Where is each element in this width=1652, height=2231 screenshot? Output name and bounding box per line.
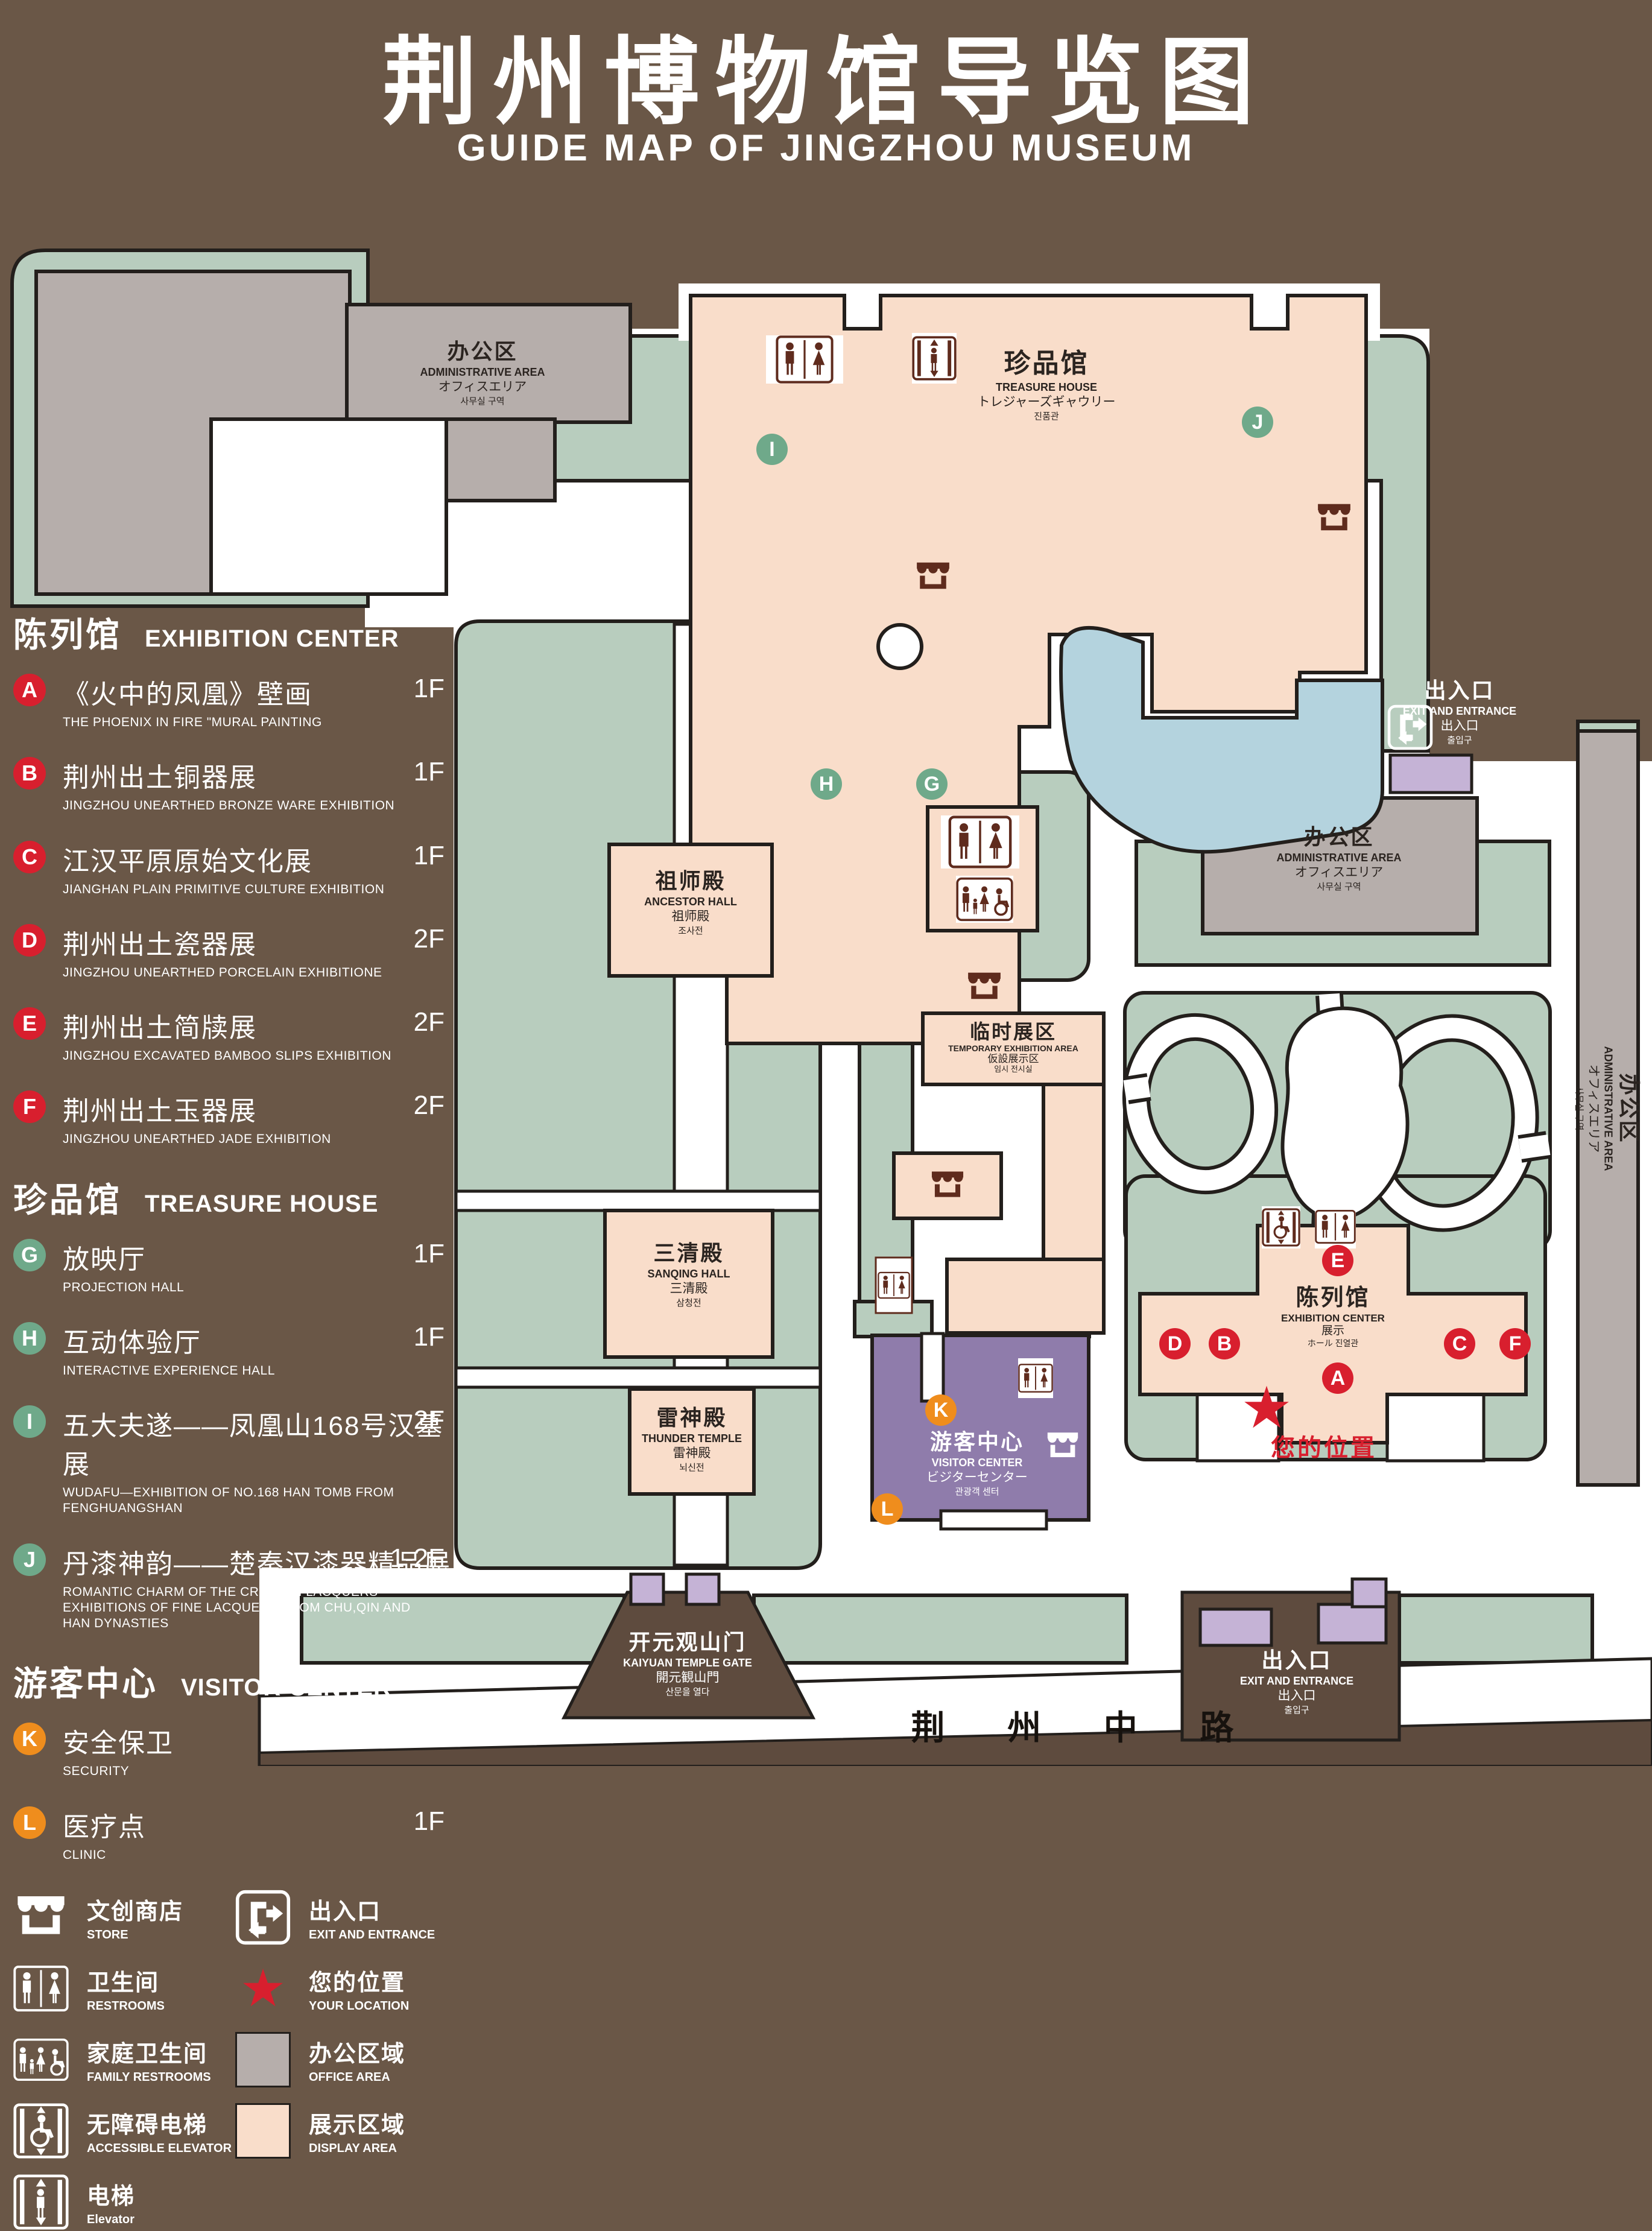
label-kr: 조사전 [644,925,737,937]
exit-icon [235,1890,291,1945]
marker-badge-b: B [13,757,46,790]
item-en: ROMANTIC CHARM OF THE CRIMSON LACQUERS—E… [63,1584,425,1632]
location-star-icon: ★ [235,1963,291,2014]
symbol-zh: 文创商店 [87,1893,183,1926]
label-zh: 出入口 [1403,677,1516,704]
legend-item-h: H 互动体验厅 1F INTERACTIVE EXPERIENCE HALL [13,1321,463,1379]
label-admin-topleft: 办公区 ADMINISTRATIVE AREA オフィスエリア 사무실 구역 [420,338,545,407]
label-jp: 仮設展示区 [948,1053,1078,1065]
item-en: SECURITY [63,1764,425,1779]
temporary-bottom [947,1259,1104,1333]
map-marker-j: J [1242,407,1273,438]
item-en: JINGZHOU UNEARTHED BRONZE WARE EXHIBITIO… [63,798,425,814]
symbol-en: FAMILY RESTROOMS [87,2071,211,2084]
label-kr: ホール 진열관 [1281,1338,1385,1349]
label-zh: 办公区 [1277,823,1402,851]
item-zh: 安全保卫 [63,1729,174,1758]
label-en: EXIT AND ENTRANCE [1403,704,1516,718]
label-en: ANCESTOR HALL [644,895,737,909]
label-jp: オフィスエリア [1585,1046,1601,1171]
east-entrance-block [1390,755,1472,793]
label-en: KAIYUAN TEMPLE GATE [623,1656,752,1670]
item-floor: 1F [414,1806,445,1837]
legend-item-k: K 安全保卫 1F SECURITY [13,1721,463,1779]
marker-badge-h: H [13,1322,46,1355]
label-en: THUNDER TEMPLE [642,1432,742,1446]
item-en: PROJECTION HALL [63,1280,425,1296]
label-exhibition-center: 陈列馆 EXHIBITION CENTER 展示 ホール 진열관 [1281,1285,1385,1349]
legend-item-d: D 荆州出土瓷器展 2F JINGZHOU UNEARTHED PORCELAI… [13,923,463,981]
item-floor: 1F [414,1322,445,1352]
green-bottom-2 [754,1595,1127,1663]
legend-section-exhibition: 陈列馆EXHIBITION CENTER [13,608,463,657]
item-floor: 2F [414,1405,445,1435]
map-marker-k: K [925,1394,957,1426]
label-jp: トレジャーズギャウリー [978,394,1116,411]
label-kr: 뇌신전 [642,1462,742,1473]
map-marker-i: I [756,434,788,465]
legend-item-l: L 医疗点 1F CLINIC [13,1805,463,1863]
legend-family-restrooms: 家庭卫生间FAMILY RESTROOMS [13,2031,235,2089]
label-jp: 三清殿 [648,1281,730,1297]
label-zh: 开元观山门 [623,1628,752,1656]
green-bottom-3 [1399,1595,1592,1663]
symbol-zh: 家庭卫生间 [87,2035,211,2068]
item-en: JINGZHOU EXCAVATED BAMBOO SLIPS EXHIBITI… [63,1048,425,1064]
legend-symbol-grid: 文创商店STORE 出入口EXIT AND ENTRANCE 卫生间RESTRO… [13,1888,463,2231]
legend-office-area: 办公区域OFFICE AREA [235,2031,460,2089]
label-en: EXHIBITION CENTER [1281,1312,1385,1324]
restroom-icon [13,1961,69,2016]
temporary-leg [1043,1084,1104,1259]
symbol-zh: 展示区域 [309,2106,405,2139]
label-zh: 三清殿 [648,1239,730,1267]
label-temporary-area: 临时展区 TEMPORARY EXHIBITION AREA 仮設展示区 임시 … [948,1021,1078,1074]
label-zh: 陈列馆 [1281,1285,1385,1312]
item-zh: 医疗点 [63,1812,146,1842]
marker-badge-j: J [13,1543,46,1576]
item-zh: 荆州出土瓷器展 [63,930,257,960]
item-floor: 1F [414,841,445,871]
item-floor: 1F [414,674,445,704]
label-kr: 진품관 [978,411,1116,422]
section-title-en: TREASURE HOUSE [145,1191,378,1217]
label-en: TEMPORARY EXHIBITION AREA [948,1043,1078,1053]
legend-section-treasure: 珍品馆TREASURE HOUSE [13,1173,463,1222]
th-elevator-icon [912,333,957,384]
label-treasure-house: 珍品馆 TREASURE HOUSE トレジャーズギャウリー 진품관 [978,347,1116,422]
label-kr: 사무실 구역 [420,396,545,407]
label-en: ADMINISTRATIVE AREA [420,366,545,379]
label-sanqing-hall: 三清殿 SANQING HALL 三清殿 삼청전 [648,1239,730,1309]
label-jp: 祖师殿 [644,909,737,925]
symbol-en: OFFICE AREA [309,2071,405,2084]
elevator-icon [13,2174,69,2230]
map-marker-l: L [872,1493,903,1525]
map-marker-f: F [1499,1328,1531,1359]
store-icon [13,1890,69,1945]
legend-panel: 陈列馆EXHIBITION CENTER A 《火中的凤凰》壁画 1F THE … [13,608,463,2231]
label-zh: 出入口 [1240,1647,1353,1674]
garden-pond [1282,1008,1407,1219]
section-title-zh: 游客中心 [13,1665,158,1703]
section-title-en: EXHIBITION CENTER [145,625,399,652]
item-zh: 互动体验厅 [63,1328,201,1358]
your-location-label: 您的位置 [1271,1428,1377,1463]
label-en: ADMINISTRATIVE AREA [1601,1046,1615,1171]
label-kaiyuan-gate: 开元观山门 KAIYUAN TEMPLE GATE 開元観山門 산문을 열다 [623,1628,752,1698]
label-en: SANQING HALL [648,1267,730,1281]
label-kr: 사무실 구역 [1277,881,1402,893]
label-zh: 办公区 [420,338,545,366]
label-thunder-temple: 雷神殿 THUNDER TEMPLE 雷神殿 뇌신전 [642,1404,742,1473]
item-zh: 荆州出土简牍展 [63,1013,257,1043]
label-jp: オフィスエリア [420,379,545,396]
legend-elevator: 电梯Elevator [13,2173,235,2231]
symbol-zh: 您的位置 [309,1964,409,1997]
legend-accessible-elevator: 无障碍电梯ACCESSIBLE ELEVATOR [13,2102,235,2160]
item-zh: 荆州出土铜器展 [63,763,257,793]
item-floor: 2F [414,1007,445,1037]
office-courtyard [211,419,446,594]
office-top-left-col [446,419,555,501]
marker-badge-i: I [13,1405,46,1438]
legend-store: 文创商店STORE [13,1888,235,1946]
label-zh: 办公区 [1615,1046,1643,1171]
item-zh: 江汉平原原始文化展 [63,847,312,876]
legend-item-a: A 《火中的凤凰》壁画 1F THE PHOENIX IN FIRE "MURA… [13,672,463,730]
court-restroom-icon [941,815,1019,869]
legend-item-b: B 荆州出土铜器展 1F JINGZHOU UNEARTHED BRONZE W… [13,756,463,814]
temporary-store [894,1153,1001,1218]
map-marker-c: C [1444,1328,1475,1359]
label-admin-right: 办公区 ADMINISTRATIVE AREA オフィスエリア 사무실 구역 [1573,1046,1642,1171]
label-en: EXIT AND ENTRANCE [1240,1674,1353,1688]
marker-badge-e: E [13,1007,46,1040]
item-zh: 五大夫遂——凤凰山168号汉墓展 [63,1411,443,1479]
symbol-en: EXIT AND ENTRANCE [309,1928,435,1942]
label-road: 荆 州 中 路 [911,1701,1261,1750]
symbol-zh: 无障碍电梯 [87,2106,232,2139]
temporary-restroom-icon [876,1258,912,1313]
label-jp: 開元観山門 [623,1670,752,1686]
legend-item-f: F 荆州出土玉器展 2F JINGZHOU UNEARTHED JADE EXH… [13,1089,463,1147]
label-zh: 祖师殿 [644,867,737,895]
label-kr: 사무실 구역 [1573,1046,1584,1171]
item-en: CLINIC [63,1847,425,1863]
label-zh: 临时展区 [948,1021,1078,1043]
map-marker-d: D [1159,1328,1191,1359]
marker-badge-c: C [13,841,46,873]
item-en: JINGZHOU UNEARTHED PORCELAIN EXHIBITIONE [63,965,425,981]
map-marker-b: B [1209,1328,1240,1359]
label-en: VISITOR CENTER [926,1456,1028,1470]
item-floor: 1F [414,1239,445,1269]
accessible-elevator-icon [13,2103,69,2159]
label-zh: 雷神殿 [642,1404,742,1432]
item-en: JINGZHOU UNEARTHED JADE EXHIBITION [63,1131,425,1147]
label-jp: 雷神殿 [642,1446,742,1462]
court-family-restroom-icon [956,876,1013,923]
family-restroom-icon [13,2032,69,2087]
item-floor: 2F [414,924,445,954]
label-zh: 游客中心 [926,1428,1028,1456]
map-marker-a: A [1322,1362,1353,1394]
vc-restroom-icon [1018,1358,1053,1398]
marker-badge-g: G [13,1239,46,1271]
marker-badge-f: F [13,1090,46,1123]
label-kr: 임시 전시실 [948,1065,1078,1074]
guide-map-page: { "title": {"zh": "荆州博物馆导览图", "en": "GUI… [0,0,1652,1766]
page-subtitle: GUIDE MAP OF JINGZHOU MUSEUM [0,127,1652,169]
label-jp: ビジターセンター [926,1470,1028,1486]
office-area-swatch [235,2032,291,2087]
label-east-exit: 出入口 EXIT AND ENTRANCE 出入口 출입구 [1403,677,1516,746]
label-en: TREASURE HOUSE [978,381,1116,394]
item-floor: 2F [414,1090,445,1121]
symbol-en: STORE [87,1928,183,1942]
legend-item-c: C 江汉平原原始文化展 1F JIANGHAN PLAIN PRIMITIVE … [13,840,463,897]
legend-item-j: J 丹漆神韵——楚秦汉漆器精品展 1-2F ROMANTIC CHARM OF … [13,1542,463,1632]
page-title: 荆州博物馆导览图 [0,5,1652,143]
label-kr: 관광객 센터 [926,1486,1028,1498]
legend-restrooms: 卫生间RESTROOMS [13,1960,235,2017]
th-restroom-icon [766,335,843,384]
legend-your-location: ★ 您的位置YOUR LOCATION [235,1960,460,2017]
label-kr: 삼청전 [648,1297,730,1309]
marker-badge-a: A [13,674,46,706]
item-zh: 放映厅 [63,1245,146,1274]
label-en: ADMINISTRATIVE AREA [1277,851,1402,865]
label-jp: 出入口 [1403,718,1516,735]
item-floor: 1-2F [390,1543,445,1574]
legend-display-area: 展示区域DISPLAY AREA [235,2102,460,2160]
item-en: WUDAFU—EXHIBITION OF NO.168 HAN TOMB FRO… [63,1485,425,1517]
section-title-zh: 珍品馆 [13,1181,122,1219]
item-zh: 荆州出土玉器展 [63,1097,257,1126]
label-ancestor-hall: 祖师殿 ANCESTOR HALL 祖师殿 조사전 [644,867,737,937]
symbol-en: YOUR LOCATION [309,1999,409,2013]
symbol-zh: 出入口 [309,1893,435,1926]
label-kr: 출입구 [1403,735,1516,746]
label-jp: オフィスエリア [1277,865,1402,881]
legend-exit: 出入口EXIT AND ENTRANCE [235,1888,460,1946]
symbol-en: Elevator [87,2213,135,2227]
map-marker-e: E [1322,1245,1353,1276]
label-zh: 珍品馆 [978,347,1116,381]
marker-badge-d: D [13,924,46,957]
legend-item-g: G 放映厅 1F PROJECTION HALL [13,1238,463,1296]
marker-badge-k: K [13,1723,46,1755]
legend-section-visitor: 游客中心VISITOR CENTER [13,1657,463,1706]
symbol-zh: 卫生间 [87,1964,165,1997]
map-marker-h: H [811,768,842,800]
legend-item-i: I 五大夫遂——凤凰山168号汉墓展 2F WUDAFU—EXHIBITION … [13,1404,463,1517]
marker-badge-l: L [13,1806,46,1839]
symbol-en: ACCESSIBLE ELEVATOR [87,2142,232,2156]
plaza-restroom-icon [1315,1205,1356,1248]
label-kr: 산문을 열다 [623,1686,752,1698]
item-zh: 《火中的凤凰》壁画 [63,680,312,709]
symbol-en: RESTROOMS [87,1999,165,2013]
symbol-en: DISPLAY AREA [309,2142,405,2156]
item-floor: 1F [414,757,445,787]
symbol-zh: 电梯 [87,2177,135,2210]
item-en: THE PHOENIX IN FIRE "MURAL PAINTING [63,715,425,730]
item-floor: 1F [414,1723,445,1753]
symbol-zh: 办公区域 [309,2035,405,2068]
label-admin-mid: 办公区 ADMINISTRATIVE AREA オフィスエリア 사무실 구역 [1277,823,1402,893]
label-visitor-center: 游客中心 VISITOR CENTER ビジターセンター 관광객 센터 [926,1428,1028,1498]
section-title-zh: 陈列馆 [13,616,122,654]
display-area-swatch [235,2103,291,2159]
map-marker-g: G [916,768,948,800]
item-en: JIANGHAN PLAIN PRIMITIVE CULTURE EXHIBIT… [63,882,425,897]
item-en: INTERACTIVE EXPERIENCE HALL [63,1363,425,1379]
pavilion-circle [878,625,922,668]
legend-item-e: E 荆州出土简牍展 2F JINGZHOU EXCAVATED BAMBOO S… [13,1006,463,1064]
plaza-accessible-icon [1262,1206,1300,1248]
section-title-en: VISITOR CENTER [181,1674,391,1701]
label-jp: 展示 [1281,1324,1385,1338]
